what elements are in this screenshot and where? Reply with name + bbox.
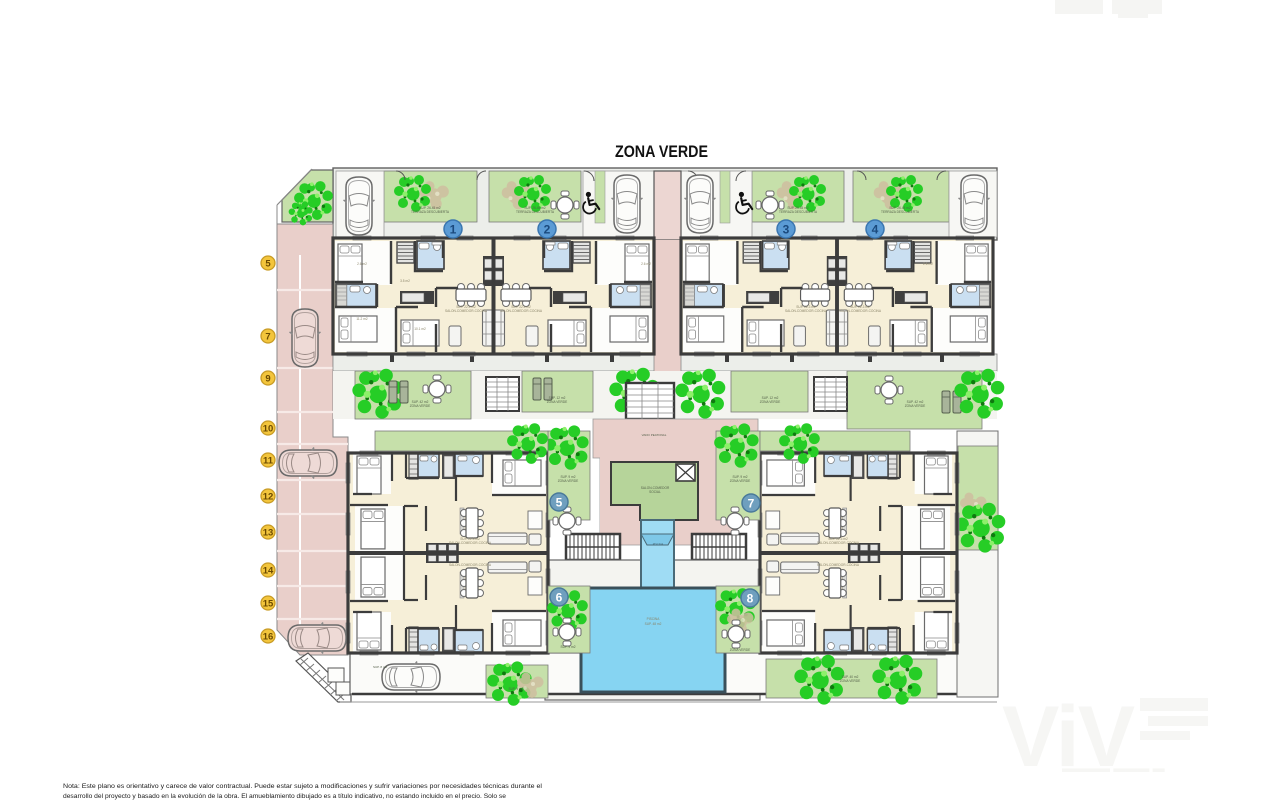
svg-text:13: 13 [263,528,274,539]
svg-text:7: 7 [748,497,755,511]
svg-text:7: 7 [265,332,270,343]
svg-text:2.6 m2: 2.6 m2 [923,262,933,266]
svg-text:15: 15 [263,599,274,610]
svg-text:8: 8 [747,592,754,606]
svg-text:11.2 m2: 11.2 m2 [356,317,368,321]
svg-text:ZONA VERDE: ZONA VERDE [410,404,431,408]
svg-text:10.1 m2: 10.1 m2 [414,327,426,331]
svg-text:SALON-COMEDOR-COCINA: SALON-COMEDOR-COCINA [785,309,828,313]
svg-text:ZONA VERDE: ZONA VERDE [905,404,926,408]
svg-text:PISCINA: PISCINA [647,617,661,621]
svg-text:1: 1 [450,223,457,237]
svg-text:SALON-COMEDOR-COCINA: SALON-COMEDOR-COCINA [817,541,860,545]
svg-text:SALON-COMEDOR-COCINA: SALON-COMEDOR-COCINA [449,563,492,567]
svg-text:ZONA VERDE: ZONA VERDE [730,479,751,483]
svg-text:6: 6 [556,591,563,605]
svg-text:ZONA VERDE: ZONA VERDE [547,400,568,404]
svg-text:SALON-COMEDOR-COCINA: SALON-COMEDOR-COCINA [839,309,882,313]
svg-text:SUP. 9 m2: SUP. 9 m2 [561,645,576,649]
svg-text:9: 9 [265,374,270,385]
svg-text:2.6 m2: 2.6 m2 [357,262,367,266]
svg-text:11: 11 [263,456,274,467]
svg-text:SUP. 8 m2: SUP. 8 m2 [373,665,387,669]
svg-text:10: 10 [263,424,274,435]
svg-text:SUP. 48 m2: SUP. 48 m2 [645,622,662,626]
svg-text:VADO PEATONAL: VADO PEATONAL [642,433,667,437]
svg-text:ZONA VERDE: ZONA VERDE [730,648,751,652]
svg-text:12: 12 [263,492,274,503]
svg-text:2: 2 [544,223,551,237]
svg-text:4: 4 [872,223,879,237]
svg-text:SALON-COMEDOR-COCINA: SALON-COMEDOR-COCINA [500,309,543,313]
svg-text:3.5 m2: 3.5 m2 [400,279,410,283]
svg-text:▬▬▬▬ ▬▬▬ ▬: ▬▬▬▬ ▬▬▬ ▬ [1062,761,1165,775]
svg-text:ZONA VERDE: ZONA VERDE [615,142,708,161]
svg-text:SOCIAL: SOCIAL [649,490,661,494]
svg-text:ZONA VERDE: ZONA VERDE [760,400,781,404]
svg-text:SALON-COMEDOR-COCINA: SALON-COMEDOR-COCINA [817,563,860,567]
svg-text:14: 14 [263,566,274,577]
svg-text:desarrollo del proyecto y basa: desarrollo del proyecto y basado en la e… [63,793,506,800]
svg-text:SALON-COMEDOR-COCINA: SALON-COMEDOR-COCINA [445,309,488,313]
svg-text:TERRAZA DESCUBIERTA: TERRAZA DESCUBIERTA [779,210,818,214]
svg-text:16: 16 [263,632,274,643]
svg-text:SALON-COMEDOR-COCINA: SALON-COMEDOR-COCINA [449,541,492,545]
svg-text:5: 5 [265,259,271,270]
svg-text:ZONA VERDE: ZONA VERDE [558,479,579,483]
svg-text:5: 5 [556,496,563,510]
svg-text:Nota: Este plano es orientativ: Nota: Este plano es orientativo y carece… [63,783,543,790]
svg-text:SUP. 9 m2: SUP. 9 m2 [509,687,524,691]
svg-text:3: 3 [783,223,790,237]
svg-text:ZONA VERDE: ZONA VERDE [840,679,861,683]
svg-text:TERRAZA DESCUBIERTA: TERRAZA DESCUBIERTA [411,210,450,214]
svg-text:TERRAZA DESCUBIERTA: TERRAZA DESCUBIERTA [881,210,920,214]
svg-text:2.6 m2: 2.6 m2 [641,262,651,266]
svg-text:PISCINA: PISCINA [653,542,664,546]
svg-text:TERRAZA DESCUBIERTA: TERRAZA DESCUBIERTA [516,210,555,214]
